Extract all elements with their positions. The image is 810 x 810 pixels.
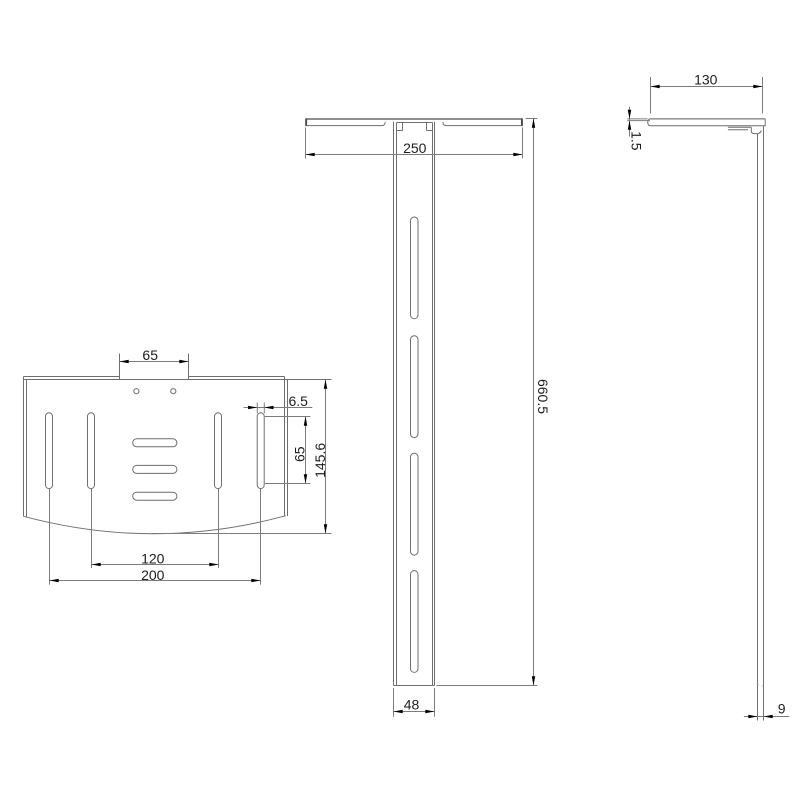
svg-text:200: 200 [141,567,165,583]
svg-text:65: 65 [291,446,307,462]
svg-text:120: 120 [141,551,165,567]
svg-text:130: 130 [694,72,718,88]
svg-text:250: 250 [403,140,427,156]
svg-text:145.6: 145.6 [312,443,328,478]
svg-text:65: 65 [142,347,158,363]
svg-text:48: 48 [404,697,420,713]
svg-text:660.5: 660.5 [535,379,551,414]
svg-text:9: 9 [778,701,786,717]
svg-text:6.5: 6.5 [288,393,308,409]
svg-text:1.5: 1.5 [629,131,645,151]
